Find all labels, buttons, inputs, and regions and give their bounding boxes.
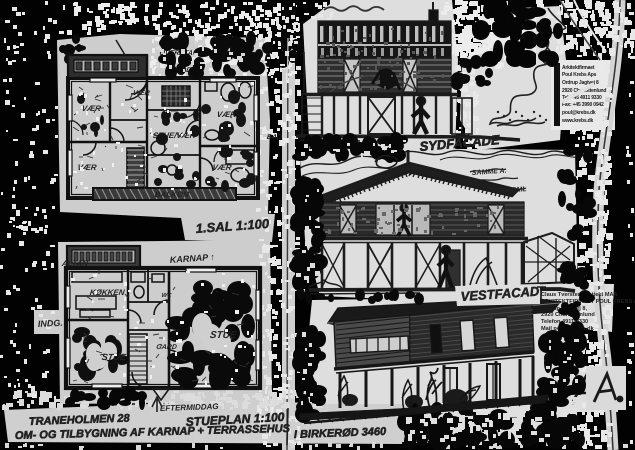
svg-text:INDG.: INDG.: [38, 318, 64, 329]
svg-text:BAD: BAD: [266, 134, 282, 141]
svg-text:WC: WC: [161, 293, 172, 299]
svg-text:STUE: STUE: [101, 352, 127, 362]
svg-text:Poul Krebs Aps: Poul Krebs Aps: [562, 72, 597, 78]
svg-text:Arkitektfirmaet: Arkitektfirmaet: [562, 65, 595, 71]
svg-text:www.krebs.dk: www.krebs.dk: [561, 118, 593, 124]
svg-text:BALKON: BALKON: [154, 190, 190, 199]
svg-text:VÆR: VÆR: [77, 163, 98, 172]
svg-text:poul@krebs.dk: poul@krebs.dk: [562, 110, 596, 116]
svg-text:GARD: GARD: [156, 344, 178, 351]
svg-text:KØKKEN: KØKKEN: [89, 288, 125, 297]
svg-text:Fax: +45 3990 0942: Fax: +45 3990 0942: [562, 102, 604, 108]
svg-text:VÆR: VÆR: [212, 163, 233, 172]
svg-text:VÆR: VÆR: [81, 104, 102, 113]
svg-text:VÆR: VÆR: [132, 90, 151, 97]
svg-text:ALTAN: ALTAN: [60, 259, 88, 268]
svg-text:STUE: STUE: [209, 330, 237, 341]
